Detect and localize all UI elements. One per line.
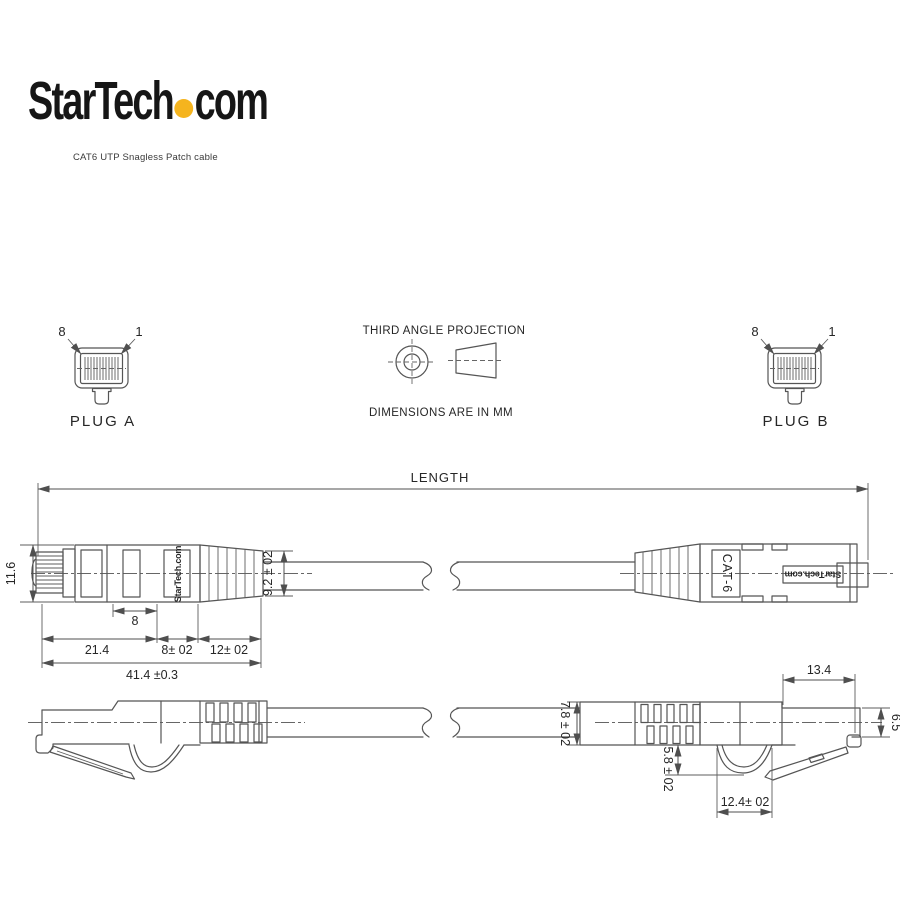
leader-line — [68, 339, 81, 354]
left-connector-brand-text: StarTech.com — [173, 546, 183, 603]
cable-profile-view: 7.8 ± 02 5.8 ± 02 12.4± 02 13.4 6.5 — [28, 663, 900, 818]
cable-top-view: StarTech.com CAT-6 StarTech.com — [4, 544, 895, 682]
plug-b-label: PLUG B — [762, 413, 829, 430]
plug-b-view: 8 1 PLUG B — [751, 324, 835, 430]
spec-sheet-page: { "header": { "logo_part1": "StarTech", … — [0, 0, 900, 900]
right-connector-model-text: CAT-6 — [720, 554, 734, 594]
right-connector-top: CAT-6 StarTech.com — [635, 544, 868, 602]
dim-hook-width: 12.4± 02 — [721, 795, 770, 809]
rj45-tip — [36, 552, 63, 593]
boot-smooth-section — [580, 702, 635, 745]
plug-b-pin1-label: 1 — [828, 324, 835, 339]
latch-lever — [765, 747, 848, 780]
plug-collar — [63, 549, 75, 597]
boot-rib-slots — [641, 705, 700, 744]
profile-view-dimensions: 7.8 ± 02 5.8 ± 02 12.4± 02 13.4 6.5 — [558, 663, 900, 818]
rj45-tip-profile — [782, 702, 860, 737]
plug-a-label: PLUG A — [70, 413, 136, 430]
body-notch — [772, 544, 787, 550]
dim-hook-depth: 5.8 ± 02 — [661, 746, 675, 791]
boot-ribs — [643, 546, 688, 600]
projection-title: THIRD ANGLE PROJECTION — [363, 325, 526, 337]
plug-b-latch-tab — [786, 389, 805, 405]
cable-break-icon — [450, 708, 459, 737]
dim-plug-length: 13.4 — [807, 663, 831, 677]
boot-hook-outer — [717, 745, 772, 773]
dim-window: 8 — [132, 614, 139, 628]
body-notch — [742, 596, 763, 602]
right-connector-profile — [580, 702, 861, 780]
leader-line — [121, 339, 135, 354]
dim-plug-section: 21.4 — [85, 643, 109, 657]
cable-break-icon — [422, 708, 431, 737]
witness-lines — [42, 598, 261, 668]
dim-boot-end: 7.8 ± 02 — [558, 701, 572, 746]
plug-a-view: 8 1 PLUG A — [58, 324, 142, 430]
dim-mid-section: 8± 02 — [161, 643, 192, 657]
right-connector-brand-text: StarTech.com — [785, 570, 842, 580]
rj45-tip-ribs — [36, 556, 63, 588]
length-dim-text: LENGTH — [411, 470, 470, 485]
witness-lines — [783, 674, 855, 733]
cable-edges — [263, 562, 423, 590]
boot-hook-inner — [722, 745, 767, 767]
plug-a-pin1-label: 1 — [135, 324, 142, 339]
latch-lever-line — [57, 751, 123, 774]
body-top-edge — [42, 701, 200, 710]
cable-break-icon — [450, 562, 459, 590]
leader-line — [761, 339, 774, 354]
boot-hook-inner — [134, 745, 179, 767]
dim-boot-section: 12± 02 — [210, 643, 248, 657]
cable-run-profile — [267, 708, 580, 737]
body-notch — [772, 596, 787, 602]
body-front-latch — [36, 710, 129, 753]
dim-body-height: 11.6 — [4, 562, 18, 585]
dim-plug-height: 6.5 — [889, 714, 900, 731]
snagless-boot — [635, 544, 700, 602]
left-connector-profile — [36, 701, 267, 779]
length-witness-lines — [38, 483, 868, 560]
cable-run-top — [263, 562, 635, 590]
units-note: DIMENSIONS ARE IN MM — [369, 407, 513, 419]
projection-symbol: THIRD ANGLE PROJECTION DIMENSIONS ARE IN… — [363, 325, 526, 419]
length-dimension: LENGTH — [38, 470, 868, 560]
connector-body — [700, 702, 782, 745]
cable-break-icon — [422, 562, 431, 590]
plug-a-latch-tab — [93, 389, 112, 405]
dim-overall: 41.4 ±0.3 — [126, 668, 178, 682]
plug-b-pin8-label: 8 — [751, 324, 758, 339]
plug-a-pin8-label: 8 — [58, 324, 65, 339]
cable-edges — [457, 562, 635, 590]
technical-drawing: 8 1 PLUG A 8 1 PLUG B THIRD ANGLE PROJEC… — [0, 0, 900, 900]
rj45-latch-edge — [32, 559, 36, 586]
leader-line — [814, 339, 828, 354]
top-view-dimensions: 11.6 9.2 ± 02 8 21.4 8± 02 12± 02 41.4 ±… — [4, 545, 293, 682]
dim-boot-end: 9.2 ± 02 — [261, 551, 275, 596]
body-notch — [742, 544, 763, 550]
